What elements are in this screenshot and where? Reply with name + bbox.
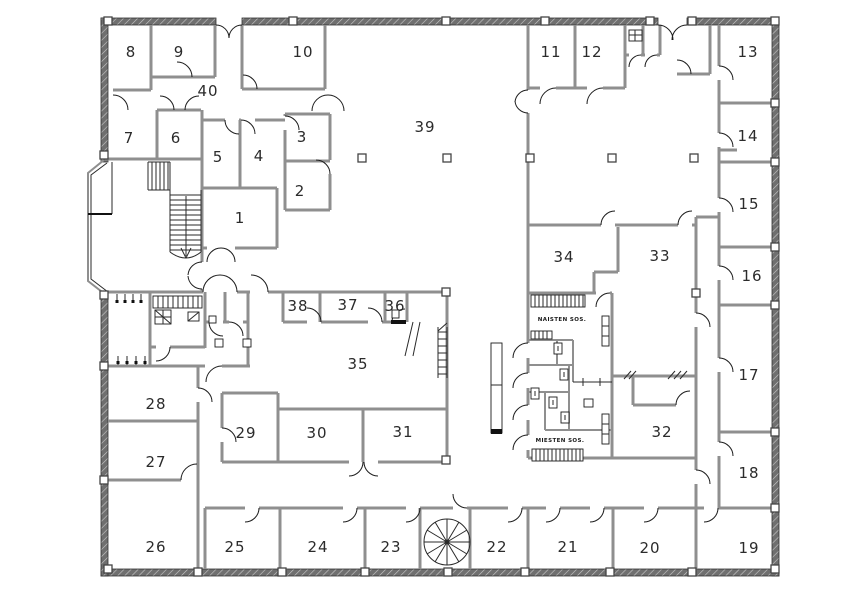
room-label-17: 17: [738, 366, 759, 384]
room-label-26: 26: [145, 538, 166, 556]
room-label-28: 28: [145, 395, 166, 413]
room-label-32: 32: [651, 423, 672, 441]
room-label-30: 30: [306, 424, 327, 442]
corridor-screen: [491, 343, 502, 434]
interior-walls: [105, 25, 772, 569]
room-label-40: 40: [197, 82, 218, 100]
service-fixtures: [155, 310, 399, 347]
outer-walls: [101, 18, 779, 576]
room-label-1: 1: [235, 209, 246, 227]
room-label-12: 12: [581, 43, 602, 61]
coat-racks: [153, 295, 585, 461]
room-label-7: 7: [124, 129, 135, 147]
room-label-35: 35: [347, 355, 368, 373]
room-label-13: 13: [737, 43, 758, 61]
room-label-22: 22: [486, 538, 507, 556]
room-label-16: 16: [741, 267, 762, 285]
room-label-27: 27: [145, 453, 166, 471]
room-label-31: 31: [392, 423, 413, 441]
room-label-20: 20: [639, 539, 660, 557]
room-label-39: 39: [414, 118, 435, 136]
miesten-sos-label: MIESTEN SOS.: [536, 438, 585, 444]
room-label-10: 10: [292, 43, 313, 61]
room-label-33: 33: [649, 247, 670, 265]
room-label-19: 19: [738, 539, 759, 557]
cloakroom-hooks: [116, 294, 147, 365]
room-label-14: 14: [737, 127, 758, 145]
naisten-sos-label: NAISTEN SOS.: [538, 317, 586, 323]
room-label-37: 37: [337, 296, 358, 314]
room-label-4: 4: [254, 147, 265, 165]
room-label-38: 38: [287, 297, 308, 315]
room-label-3: 3: [297, 128, 308, 146]
room-label-24: 24: [307, 538, 328, 556]
room-label-34: 34: [553, 248, 574, 266]
room-label-36: 36: [384, 297, 405, 315]
room-label-29: 29: [235, 424, 256, 442]
room-label-23: 23: [380, 538, 401, 556]
room-label-18: 18: [738, 464, 759, 482]
main-staircase: [148, 162, 201, 258]
spiral-staircase: [424, 519, 470, 565]
room-label-21: 21: [557, 538, 578, 556]
room-label-25: 25: [224, 538, 245, 556]
room-label-5: 5: [213, 148, 224, 166]
room-label-11: 11: [540, 43, 561, 61]
room-label-6: 6: [171, 129, 182, 147]
room-label-2: 2: [295, 182, 306, 200]
entrance-bay: [88, 160, 112, 295]
floor-plan-canvas: 1 2 3 4 5 6 7 8 9 10 11 12 13 14 15 16 1…: [0, 0, 842, 595]
room-label-8: 8: [126, 43, 137, 61]
room-label-15: 15: [738, 195, 759, 213]
floor-plan-svg: 1 2 3 4 5 6 7 8 9 10 11 12 13 14 15 16 1…: [0, 0, 842, 595]
room-label-9: 9: [174, 43, 185, 61]
